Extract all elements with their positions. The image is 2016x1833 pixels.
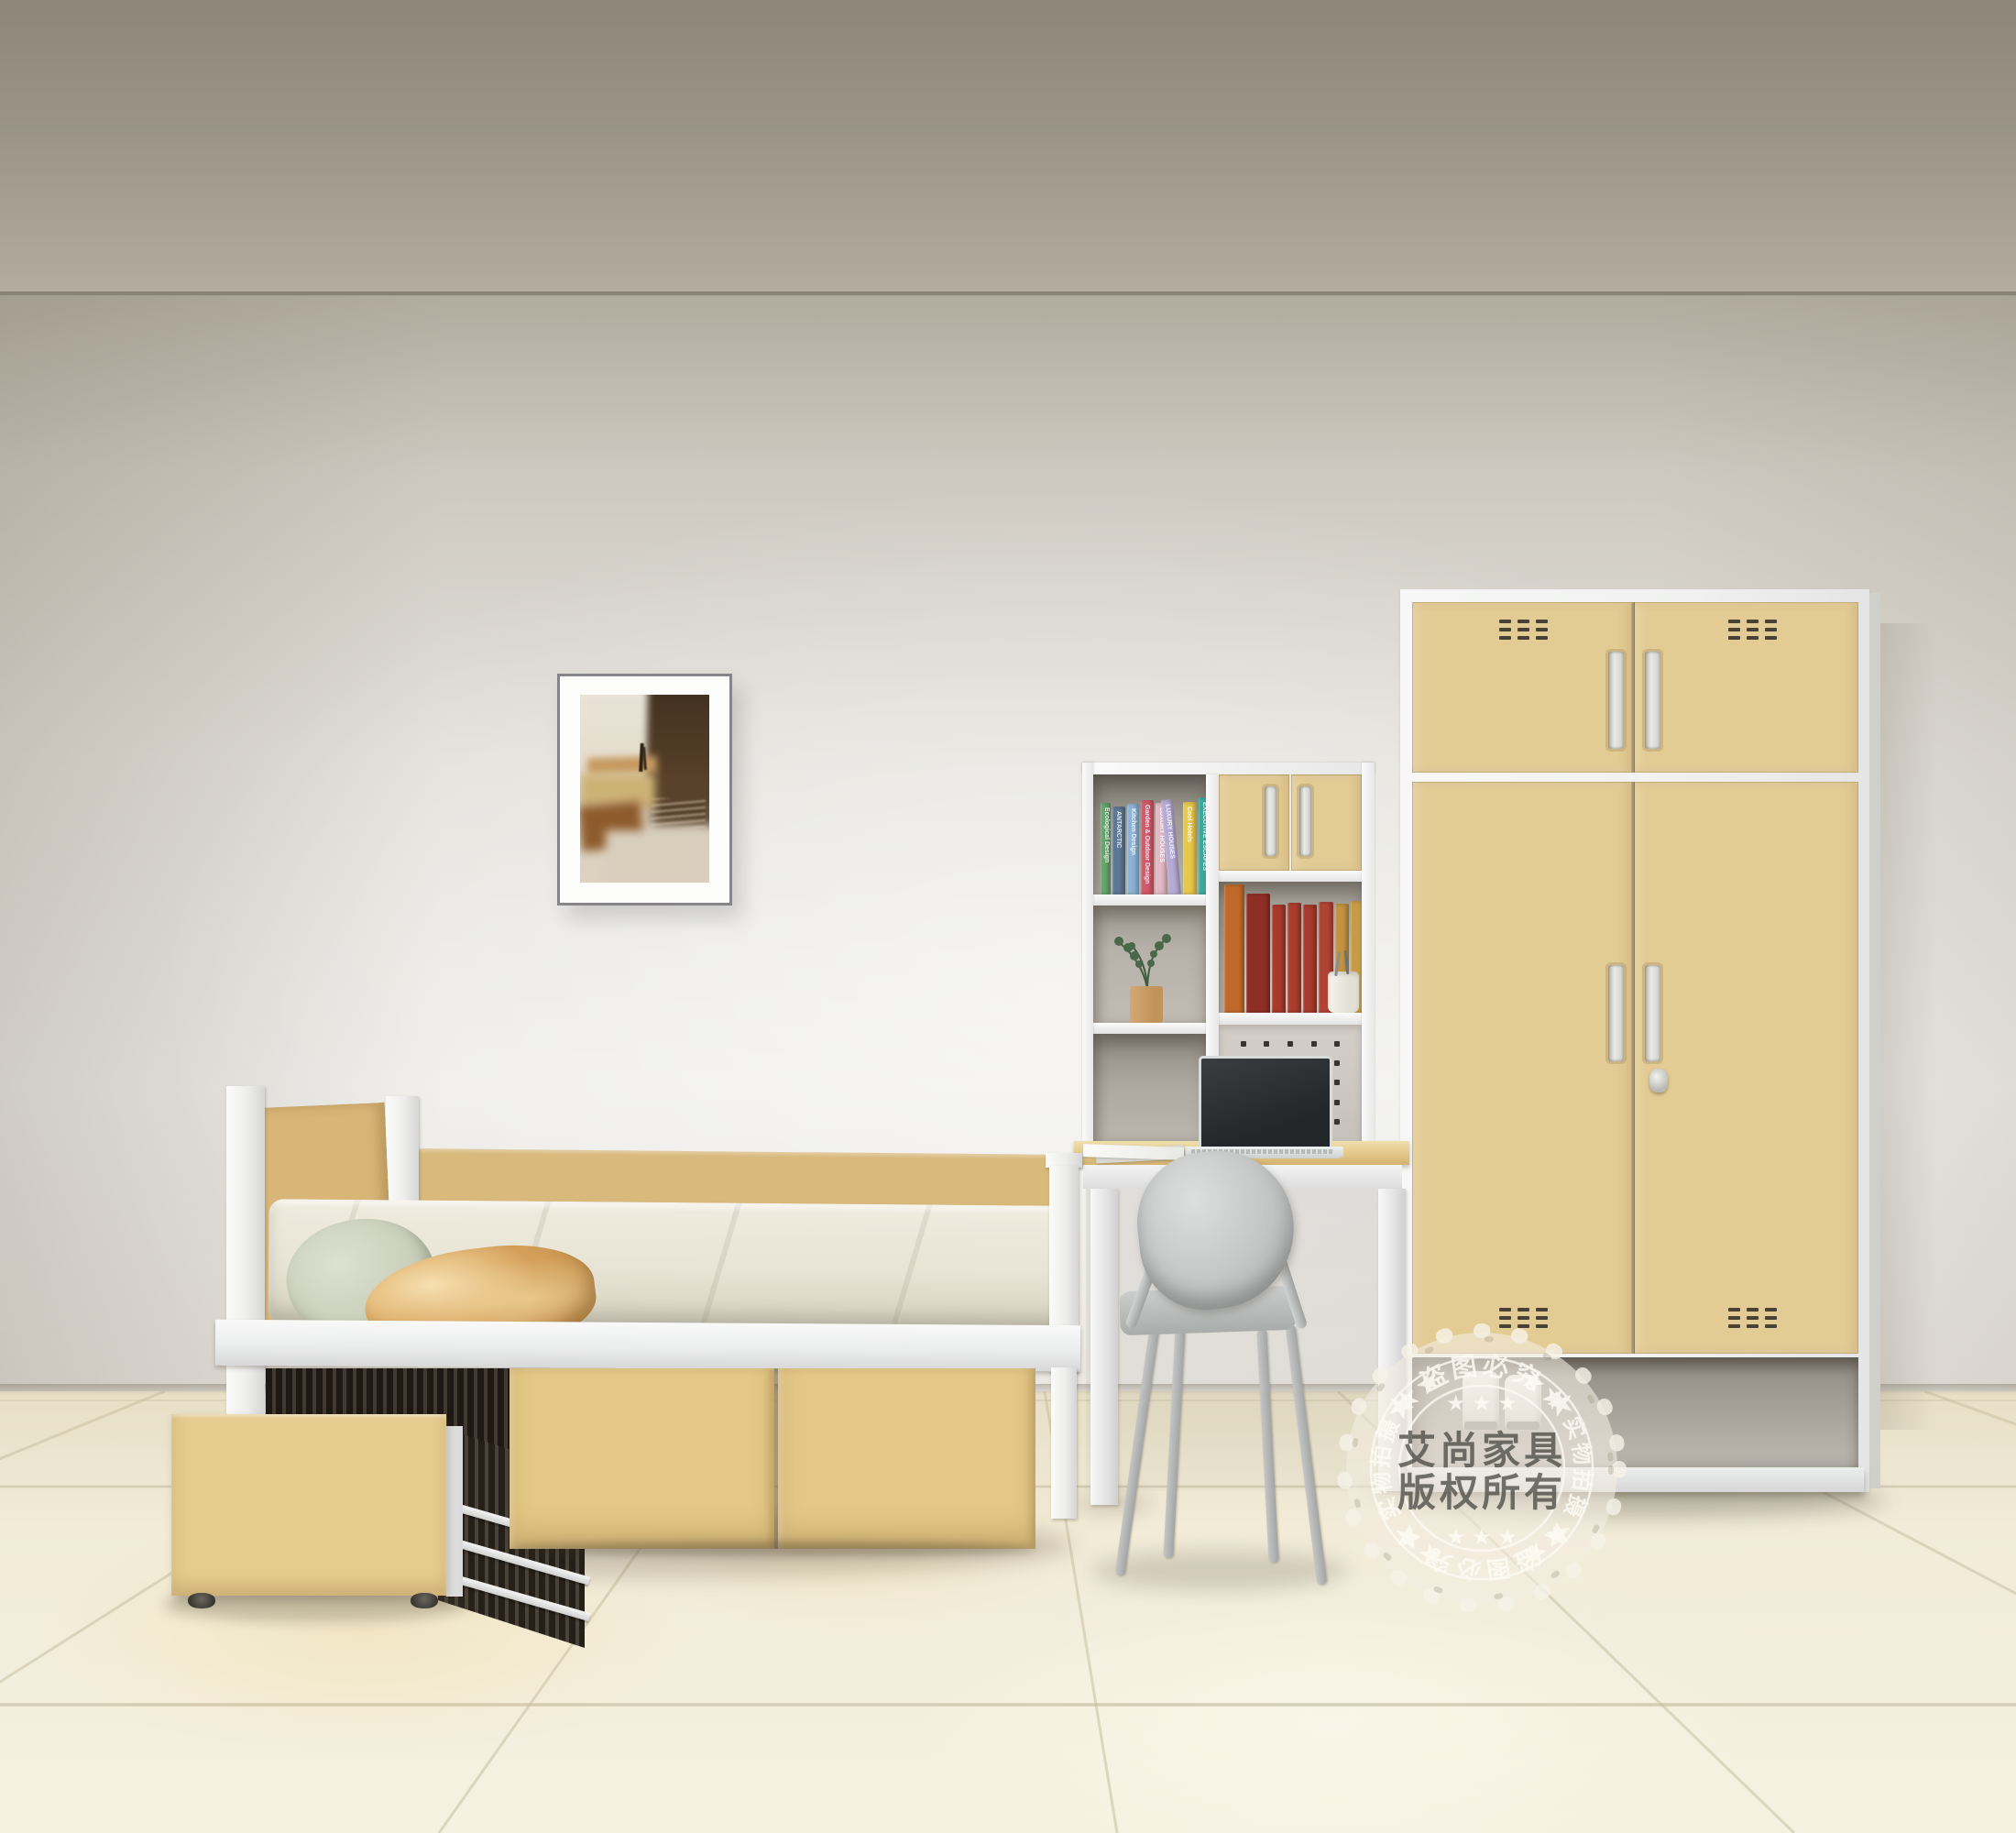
wardrobe-wall-shadow	[1871, 623, 1958, 1430]
wardrobe-lock	[1649, 1069, 1668, 1092]
peg-hole	[1334, 1041, 1340, 1047]
vent-slot-icon	[1747, 1308, 1759, 1312]
wardrobe-vent-top-right	[1728, 620, 1777, 640]
hutch-right-panel	[1362, 763, 1375, 1141]
trundle-front-panel	[171, 1414, 446, 1596]
trundle-side-rail	[446, 1426, 463, 1597]
painting-cream-area	[606, 830, 709, 883]
hutch-shelf-2	[1093, 1023, 1206, 1034]
hutch-cubby-empty	[1093, 1034, 1206, 1141]
vent-slot-icon	[1499, 628, 1511, 631]
vent-slot-icon	[1536, 620, 1548, 623]
book-spine: ANTARCTIC	[1112, 807, 1125, 895]
plant-pot	[1130, 986, 1163, 1023]
book-spine: Kitchen Design	[1127, 804, 1139, 895]
stamp-brand-text: 艾尚家具	[1397, 1429, 1566, 1472]
vent-slot-icon	[1728, 620, 1740, 623]
vent-slot-icon	[1765, 1316, 1777, 1320]
wardrobe-main-door-left	[1412, 782, 1632, 1354]
room-scene: Ecological DesignANTARCTICKitchen Design…	[0, 0, 2016, 1833]
peg-hole	[1287, 1041, 1293, 1047]
under-bed-drawer-left	[509, 1368, 774, 1549]
book-spine	[1272, 905, 1286, 1013]
stamp-copyright-text: 版权所有	[1397, 1471, 1566, 1514]
trundle-caster-left	[188, 1593, 215, 1608]
painting-tan-stroke	[587, 755, 658, 774]
vent-slot-icon	[1747, 1316, 1759, 1320]
drawer-bottom-shadow	[509, 1542, 1035, 1556]
vent-slot-icon	[1747, 620, 1759, 623]
peg-hole	[1264, 1041, 1269, 1047]
hutch-left-panel	[1082, 763, 1093, 1141]
vent-slot-icon	[1499, 620, 1511, 623]
vent-slot-icon	[1728, 1324, 1740, 1328]
vent-slot-icon	[1747, 636, 1759, 640]
book-row: Ecological DesignANTARCTICKitchen Design…	[1101, 797, 1202, 895]
vent-slot-icon	[1536, 1308, 1548, 1312]
peg-hole	[1334, 1080, 1340, 1085]
wardrobe-top-handle-right	[1645, 652, 1660, 749]
hutch-shelf-1	[1093, 895, 1206, 906]
vent-slot-icon	[1499, 1308, 1511, 1312]
pen-cup	[1328, 971, 1359, 1013]
trundle-caster-right	[411, 1593, 438, 1608]
copyright-watermark-stamp: ★ 盗图必究 ★ ★★ 实物拍摄 ★★ ★ 盗图必究 ★ ★★ 实物拍摄 ★★ …	[1331, 1317, 1633, 1619]
vent-slot-icon	[1517, 620, 1529, 623]
stamp-stars-bottom: ★ ★ ★	[1446, 1525, 1517, 1550]
chair-floor-shadow	[1090, 1551, 1347, 1591]
vent-slot-icon	[1728, 1308, 1740, 1312]
stamp-stars-top: ★ ★ ★	[1446, 1391, 1517, 1416]
peg-hole	[1334, 1060, 1340, 1066]
bed-leg-front-right	[1051, 1367, 1077, 1519]
plant-sprigs	[1106, 929, 1189, 990]
vent-slot-icon	[1536, 636, 1548, 640]
abstract-painting	[580, 695, 709, 883]
peg-hole	[1334, 1100, 1340, 1105]
vent-slot-icon	[1747, 1324, 1759, 1328]
wardrobe-main-door-right	[1634, 782, 1858, 1354]
vent-slot-icon	[1728, 1316, 1740, 1320]
hutch-cubby-plant	[1093, 906, 1206, 1023]
hutch-cabinet-handle-right	[1299, 786, 1311, 856]
wardrobe-main-door-gap	[1632, 782, 1635, 1354]
painting-streaks	[652, 798, 706, 829]
peg-hole	[1311, 1041, 1317, 1047]
wardrobe-top-handle-left	[1608, 652, 1624, 749]
laptop-screen	[1199, 1056, 1332, 1152]
wall-art-frame	[557, 674, 732, 906]
vent-slot-icon	[1536, 628, 1548, 631]
book-spine	[1287, 903, 1301, 1013]
book-spine	[1303, 905, 1317, 1013]
hutch-shelf-3	[1219, 1013, 1362, 1025]
wardrobe-main-handle-left	[1608, 965, 1624, 1061]
vent-slot-icon	[1517, 628, 1529, 631]
ceiling	[0, 0, 2016, 295]
hutch-cubby-books: Ecological DesignANTARCTICKitchen Design…	[1093, 774, 1206, 895]
vent-slot-icon	[1728, 628, 1740, 631]
hutch-book-shelf	[1219, 882, 1362, 1013]
book-spine	[1224, 884, 1244, 1013]
bed-frame-rail	[215, 1320, 1080, 1372]
vent-slot-icon	[1517, 1308, 1529, 1312]
vent-slot-icon	[1499, 636, 1511, 640]
vent-slot-icon	[1747, 628, 1759, 631]
vent-slot-icon	[1765, 636, 1777, 640]
wardrobe-vent-bottom-right	[1728, 1308, 1777, 1328]
wardrobe-top-door-gap	[1632, 602, 1635, 773]
hutch-cabinet-bottom-lip	[1219, 871, 1362, 882]
book-spine: Ecological Design	[1101, 803, 1111, 895]
vent-slot-icon	[1517, 636, 1529, 640]
wardrobe-vent-top-left	[1499, 620, 1548, 640]
vent-slot-icon	[1765, 628, 1777, 631]
under-bed-drawer-right	[778, 1368, 1035, 1549]
book-spine	[1246, 894, 1270, 1013]
hutch-cabinet-handle-left	[1265, 786, 1276, 856]
wardrobe-side-panel	[1869, 593, 1880, 1488]
vent-slot-icon	[1765, 1308, 1777, 1312]
peg-hole	[1241, 1041, 1246, 1047]
peg-hole	[1334, 1119, 1340, 1125]
hutch-cabinet-door-left	[1219, 774, 1289, 871]
drawer-gap	[774, 1368, 778, 1549]
hutch-top-band	[1082, 763, 1375, 774]
vent-slot-icon	[1765, 1324, 1777, 1328]
book-spine: Cool Hotels	[1183, 802, 1197, 895]
vent-slot-icon	[1728, 636, 1740, 640]
vent-slot-icon	[1765, 620, 1777, 623]
wardrobe-main-handle-right	[1645, 965, 1660, 1061]
book-spine: Garden & Outdoor Design	[1141, 800, 1154, 895]
desk-leg-left	[1090, 1189, 1118, 1505]
